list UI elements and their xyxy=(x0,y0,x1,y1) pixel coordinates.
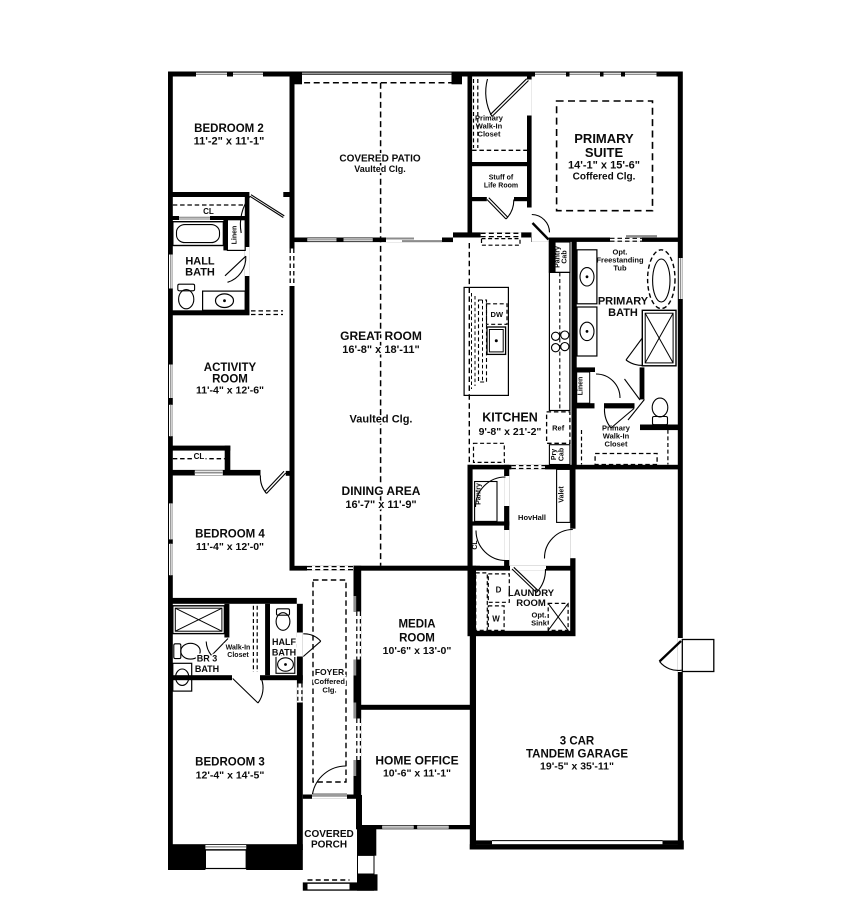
svg-text:Pantry: Pantry xyxy=(555,246,562,268)
svg-text:16'-7" x 11'-9": 16'-7" x 11'-9" xyxy=(345,499,416,511)
svg-text:Pantry: Pantry xyxy=(476,483,483,505)
svg-text:Linen: Linen xyxy=(578,377,585,396)
svg-text:Linen: Linen xyxy=(232,226,239,245)
svg-text:COVERED: COVERED xyxy=(304,829,353,840)
svg-text:DINING AREA: DINING AREA xyxy=(342,484,421,498)
svg-text:Ref: Ref xyxy=(552,424,565,433)
svg-text:BR 3: BR 3 xyxy=(197,654,218,664)
svg-text:ROOM: ROOM xyxy=(399,633,435,645)
svg-text:HALF: HALF xyxy=(272,637,296,647)
svg-text:14'-1" x 15'-6": 14'-1" x 15'-6" xyxy=(568,160,640,172)
svg-text:10'-6" x 11'-1": 10'-6" x 11'-1" xyxy=(383,768,451,780)
svg-text:MEDIA: MEDIA xyxy=(398,619,435,631)
svg-text:Coffered Clg.: Coffered Clg. xyxy=(573,172,636,183)
svg-text:BEDROOM 2: BEDROOM 2 xyxy=(194,123,264,135)
svg-text:COVERED PATIO: COVERED PATIO xyxy=(339,154,421,165)
svg-text:11'-4" x 12'-0": 11'-4" x 12'-0" xyxy=(196,541,264,553)
svg-text:ACTIVITY: ACTIVITY xyxy=(204,362,257,374)
svg-text:BATH: BATH xyxy=(195,664,219,674)
svg-text:Clg.: Clg. xyxy=(322,686,336,695)
svg-text:D: D xyxy=(496,586,502,595)
svg-text:CL: CL xyxy=(194,452,205,461)
svg-text:CL: CL xyxy=(472,540,479,550)
svg-text:16'-8" x 18'-11": 16'-8" x 18'-11" xyxy=(342,344,419,356)
svg-text:BATH: BATH xyxy=(185,267,215,279)
svg-text:11'-2" x 11'-1": 11'-2" x 11'-1" xyxy=(194,136,265,148)
svg-text:9'-8" x 21'-2": 9'-8" x 21'-2" xyxy=(479,426,542,438)
svg-text:BATH: BATH xyxy=(272,648,296,658)
svg-text:BATH: BATH xyxy=(608,307,638,319)
svg-text:10'-6" x 13'-0": 10'-6" x 13'-0" xyxy=(383,645,452,657)
svg-text:Sink: Sink xyxy=(531,619,548,628)
svg-text:Valet: Valet xyxy=(559,486,566,503)
svg-text:11'-4" x 12'-6": 11'-4" x 12'-6" xyxy=(196,385,264,397)
svg-text:12'-4" x 14'-5": 12'-4" x 14'-5" xyxy=(196,770,265,782)
svg-text:CL: CL xyxy=(203,207,214,216)
svg-text:HovHall: HovHall xyxy=(518,513,546,522)
svg-text:Life Room: Life Room xyxy=(484,183,518,190)
svg-text:PORCH: PORCH xyxy=(311,840,347,851)
svg-text:PRIMARY: PRIMARY xyxy=(574,131,634,146)
svg-text:SUITE: SUITE xyxy=(585,145,624,160)
svg-text:Stuff of: Stuff of xyxy=(489,175,514,182)
svg-text:PRIMARY: PRIMARY xyxy=(598,296,649,308)
svg-text:Closet: Closet xyxy=(478,130,501,139)
svg-text:KITCHEN: KITCHEN xyxy=(482,411,538,425)
svg-text:Closet: Closet xyxy=(605,440,628,449)
svg-text:GREAT ROOM: GREAT ROOM xyxy=(340,329,422,343)
svg-text:ROOM: ROOM xyxy=(516,598,546,609)
svg-text:Vaulted Clg.: Vaulted Clg. xyxy=(354,164,406,174)
svg-text:Walk-In: Walk-In xyxy=(226,645,251,652)
svg-text:W: W xyxy=(492,615,500,624)
svg-text:Vaulted Clg.: Vaulted Clg. xyxy=(350,414,413,426)
svg-text:3 CAR: 3 CAR xyxy=(560,736,595,748)
svg-text:Pry: Pry xyxy=(551,449,558,460)
svg-text:Cab: Cab xyxy=(562,250,569,263)
svg-text:FOYER: FOYER xyxy=(315,667,344,677)
svg-text:TANDEM GARAGE: TANDEM GARAGE xyxy=(526,749,628,761)
svg-text:Tub: Tub xyxy=(613,264,627,273)
svg-text:BEDROOM 4: BEDROOM 4 xyxy=(195,529,265,541)
svg-text:Closet: Closet xyxy=(227,652,249,659)
svg-text:BEDROOM 3: BEDROOM 3 xyxy=(195,757,265,769)
svg-text:Cab: Cab xyxy=(559,448,566,461)
svg-text:HOME OFFICE: HOME OFFICE xyxy=(375,754,458,768)
svg-text:DW: DW xyxy=(491,310,504,319)
svg-text:19'-5" x 35'-11": 19'-5" x 35'-11" xyxy=(540,761,614,773)
